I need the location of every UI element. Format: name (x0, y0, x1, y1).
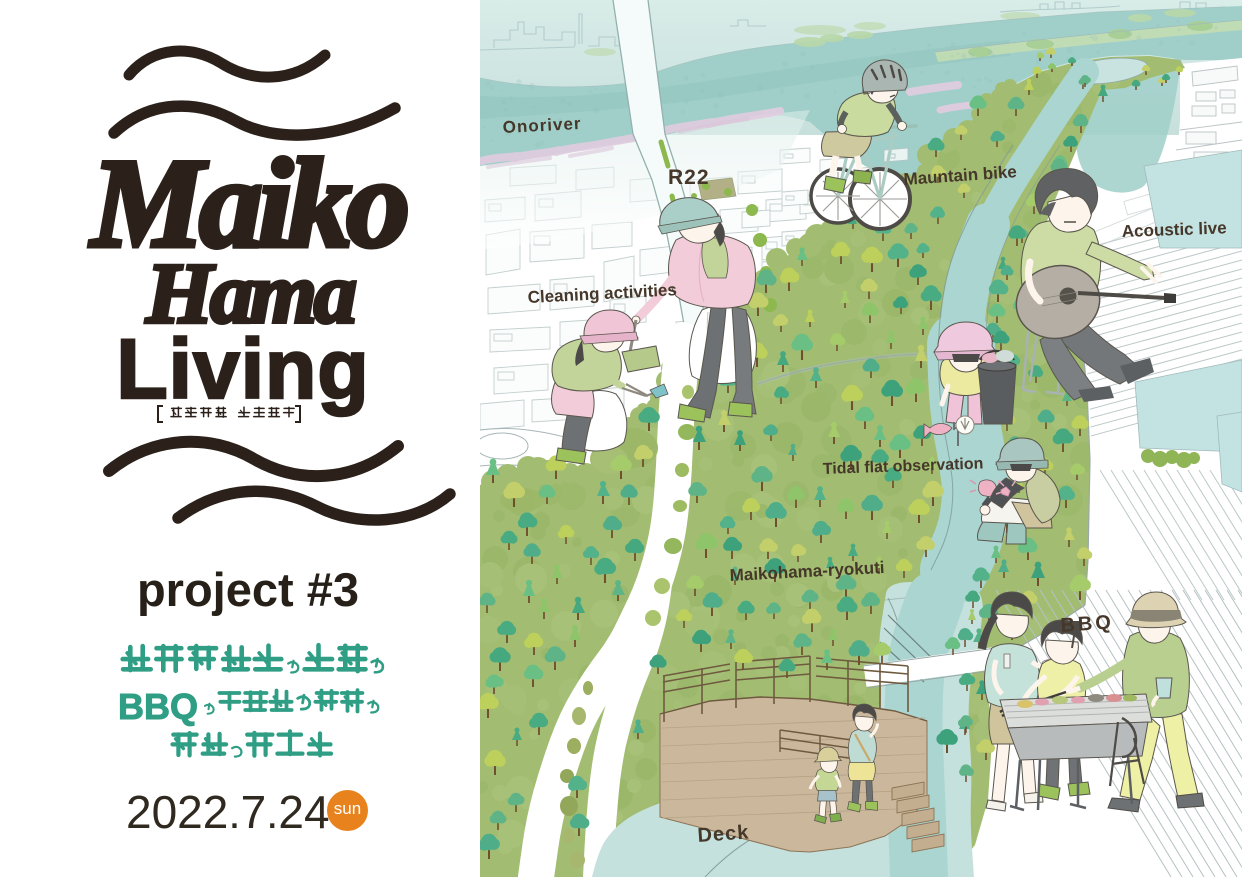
svg-text:BBQ: BBQ (118, 686, 198, 727)
svg-text:Acoustic live: Acoustic live (1121, 218, 1226, 241)
svg-text:R22: R22 (668, 166, 710, 189)
svg-text:Deck: Deck (697, 821, 750, 847)
svg-text:BBQ: BBQ (1060, 611, 1115, 637)
